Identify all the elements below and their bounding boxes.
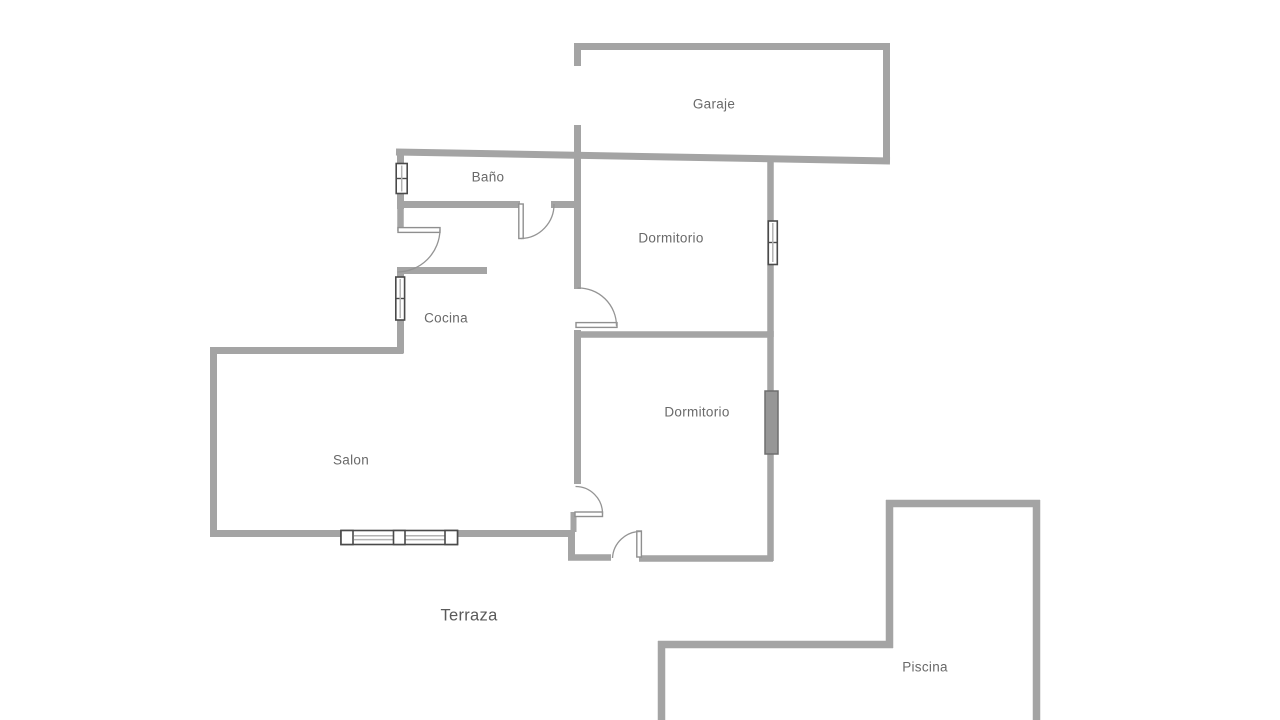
bedroom2-door-leaf bbox=[637, 531, 642, 557]
livingroom-window-mullion-left bbox=[341, 531, 353, 545]
kitchen-window bbox=[396, 277, 405, 320]
livingroom-walls bbox=[210, 347, 575, 537]
room-label-cocina: Cocina bbox=[424, 311, 468, 326]
bathroom-door bbox=[519, 204, 554, 239]
livingroom-window-mullion-center bbox=[394, 531, 406, 545]
kitchen-door-leaf bbox=[398, 228, 440, 233]
bathroom-door-swing bbox=[521, 204, 554, 239]
bedroom1-door-leaf bbox=[576, 323, 617, 328]
livingroom-window bbox=[341, 531, 458, 545]
bedroom2-window-bar bbox=[765, 391, 778, 454]
bedroom2-door bbox=[613, 531, 642, 558]
room-label-bano: Baño bbox=[472, 170, 505, 185]
room-label-terraza: Terraza bbox=[440, 607, 497, 626]
floor-plan: Garaje Baño Dormitorio Cocina Salon Dorm… bbox=[0, 0, 1280, 720]
bedroom1-walls bbox=[575, 159, 771, 337]
entry-door-swing bbox=[576, 487, 603, 514]
bathroom-window bbox=[396, 164, 407, 194]
livingroom-window-mullion-right bbox=[445, 531, 458, 545]
bathroom-walls bbox=[397, 150, 581, 231]
entry-door-leaf bbox=[575, 512, 603, 517]
floor-plan-drawing bbox=[0, 0, 1280, 720]
bedroom2-window bbox=[765, 391, 778, 454]
bedroom2-walls bbox=[568, 331, 773, 561]
garage-walls bbox=[396, 43, 890, 161]
room-label-piscina: Piscina bbox=[902, 660, 948, 675]
room-label-dormitorio-1: Dormitorio bbox=[638, 231, 703, 246]
entry-door bbox=[575, 487, 603, 517]
room-label-salon: Salon bbox=[333, 453, 369, 468]
kitchen-door-swing bbox=[398, 230, 441, 273]
bedroom1-window bbox=[768, 221, 777, 265]
bedroom1-door-swing bbox=[578, 288, 617, 326]
bathroom-door-leaf bbox=[519, 204, 523, 239]
room-label-garaje: Garaje bbox=[693, 97, 735, 112]
pool-walls bbox=[658, 500, 1040, 720]
bedroom1-door bbox=[576, 288, 617, 327]
room-label-dormitorio-2: Dormitorio bbox=[664, 405, 729, 420]
hall-walls bbox=[572, 125, 578, 560]
garage-bottom-wall bbox=[396, 152, 890, 161]
kitchen-door bbox=[398, 228, 441, 272]
